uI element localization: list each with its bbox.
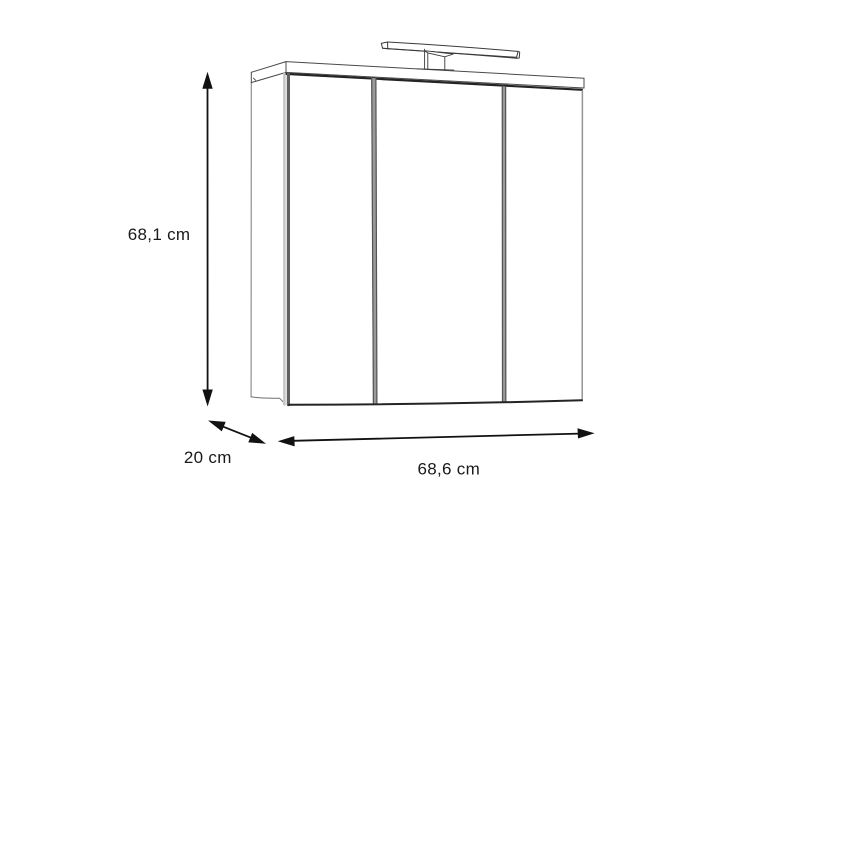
- svg-text:68,1 cm: 68,1 cm: [128, 225, 191, 244]
- svg-text:68,6 cm: 68,6 cm: [418, 460, 481, 479]
- svg-text:20 cm: 20 cm: [184, 448, 232, 467]
